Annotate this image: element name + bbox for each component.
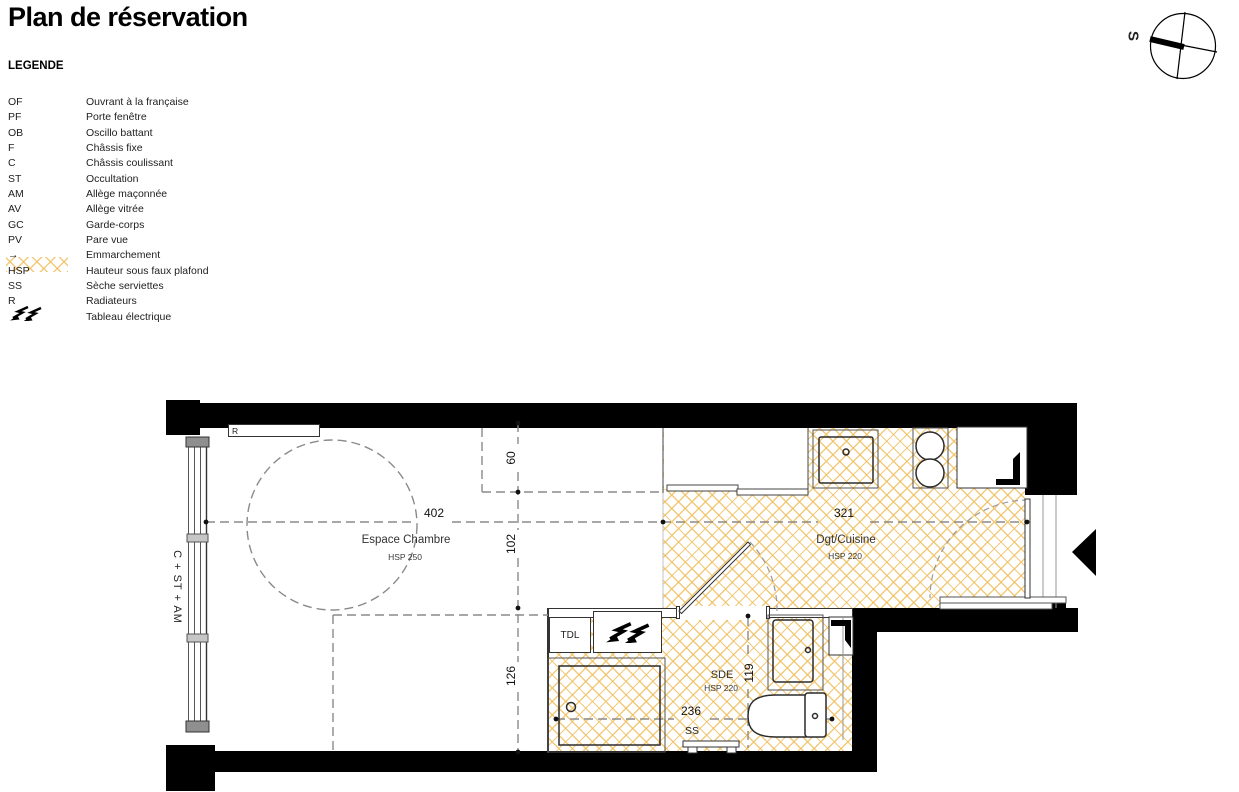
legend-abbr: PF	[8, 110, 86, 125]
legend-row: CChâssis coulissant	[8, 156, 328, 171]
legend-abbr: GC	[8, 218, 86, 233]
window-type-label: C + ST + AM	[171, 550, 183, 624]
compass-rose-icon	[1146, 9, 1224, 85]
legend-abbr: C	[8, 156, 86, 171]
tdl-label: TDL	[561, 630, 580, 641]
legend-abbr: AM	[8, 187, 86, 202]
bottom-wall	[170, 751, 877, 772]
room-hsp-sde: HSP 220	[704, 683, 738, 693]
legend-items: OFOuvrant à la françaisePFPorte fenêtreO…	[8, 95, 328, 325]
page-title: Plan de réservation	[8, 2, 248, 33]
window-icon	[186, 437, 209, 732]
legend-desc: Occultation	[86, 173, 139, 185]
legend: LEGENDE OFOuvrant à la françaisePFPorte …	[8, 60, 328, 325]
sde-door-opening	[680, 606, 766, 620]
sde-right-wall	[852, 608, 877, 772]
legend-abbr: OB	[8, 126, 86, 141]
legend-row: PFPorte fenêtre	[8, 110, 328, 125]
legend-desc: Hauteur sous faux plafond	[86, 265, 209, 277]
legend-desc: Sèche serviettes	[86, 280, 164, 292]
legend-row: STOccultation	[8, 172, 328, 187]
legend-row: SSSèche serviettes	[8, 279, 328, 294]
sde-door-jamb-left	[676, 606, 680, 619]
turning-circle	[247, 440, 417, 610]
legend-abbr: HSP	[8, 264, 86, 279]
legend-desc: Radiateurs	[86, 295, 137, 307]
legend-heading: LEGENDE	[8, 60, 328, 72]
legend-abbr: SS	[8, 279, 86, 294]
legend-desc: Ouvrant à la française	[86, 96, 189, 108]
legend-row: AMAllège maçonnée	[8, 187, 328, 202]
legend-abbr: →	[8, 248, 86, 263]
room-hsp-chambre: HSP 250	[388, 552, 422, 562]
room-label-sde: SDE	[711, 669, 734, 681]
tdl-box: TDL	[549, 617, 591, 653]
legend-desc: Allège maçonnée	[86, 188, 167, 200]
legend-desc: Châssis fixe	[86, 142, 143, 154]
legend-desc: Oscillo battant	[86, 127, 153, 139]
dim-sde-depth: 119	[742, 663, 756, 682]
dim-chambre-width: 402	[424, 506, 444, 520]
mid-right-wall	[852, 608, 1078, 632]
legend-abbr: PV	[8, 233, 86, 248]
legend-desc: Garde-corps	[86, 219, 144, 231]
legend-row: →Emmarchement	[8, 248, 328, 263]
top-left-wall-corner	[166, 400, 200, 435]
towel-dryer-label: SS	[685, 725, 699, 737]
legend-desc: Allège vitrée	[86, 203, 144, 215]
top-right-wall-pillar	[1025, 403, 1077, 495]
entry-threshold-step	[1043, 600, 1066, 608]
room-label-cuisine: Dgt/Cuisine	[816, 534, 875, 546]
dim-lower-depth: 126	[504, 666, 518, 686]
compass-south-label: S	[1125, 31, 1142, 41]
dim-mid-depth: 102	[504, 534, 518, 554]
dim-entry-depth: 60	[504, 451, 518, 464]
legend-desc: Porte fenêtre	[86, 111, 147, 123]
electric-panel-box	[593, 611, 662, 653]
legend-abbr: AV	[8, 202, 86, 217]
legend-abbr: OF	[8, 95, 86, 110]
legend-row: PVPare vue	[8, 233, 328, 248]
electric-panel-icon	[605, 621, 651, 643]
legend-row: RRadiateurs	[8, 294, 328, 309]
legend-row: FChâssis fixe	[8, 141, 328, 156]
legend-row: HSPHauteur sous faux plafond	[8, 264, 328, 279]
legend-abbr: F	[8, 141, 86, 156]
legend-desc: Emmarchement	[86, 249, 160, 261]
dim-sde-width: 236	[681, 704, 701, 718]
entry-arrow-icon	[1072, 529, 1096, 576]
sde-door-jamb-right	[766, 606, 770, 619]
legend-abbr: ST	[8, 172, 86, 187]
room-label-chambre: Espace Chambre	[362, 534, 451, 546]
legend-desc: Tableau électrique	[86, 311, 171, 323]
legend-row: OFOuvrant à la française	[8, 95, 328, 110]
legend-desc: Pare vue	[86, 234, 128, 246]
electric-panel-icon	[10, 305, 42, 321]
legend-row: Tableau électrique	[8, 310, 328, 325]
legend-desc: Châssis coulissant	[86, 157, 173, 169]
legend-row: GCGarde-corps	[8, 218, 328, 233]
radiator-box: R	[228, 424, 320, 437]
legend-row: AVAllège vitrée	[8, 202, 328, 217]
bottom-left-wall-corner	[166, 745, 215, 791]
dim-cuisine-width: 321	[834, 506, 854, 520]
room-hsp-cuisine: HSP 220	[828, 551, 862, 561]
radiator-label: R	[232, 426, 238, 436]
legend-row: OBOscillo battant	[8, 126, 328, 141]
